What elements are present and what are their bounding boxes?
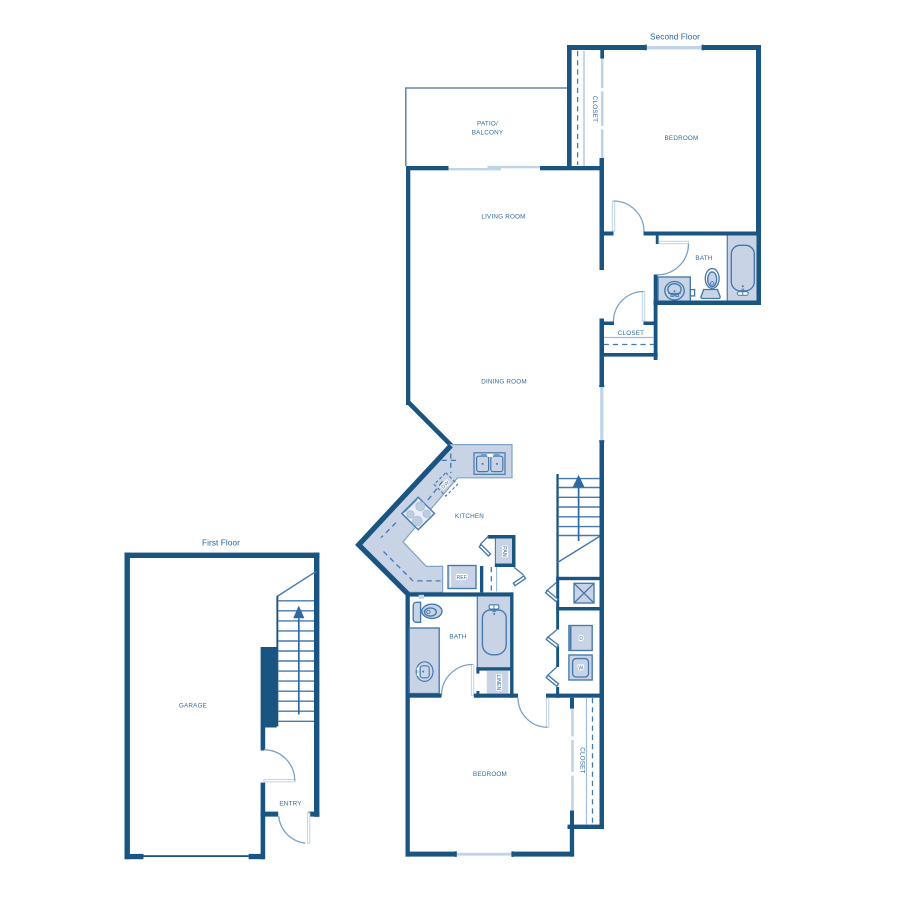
svg-text:DINING ROOM: DINING ROOM <box>481 378 527 385</box>
svg-text:PAN: PAN <box>501 546 507 557</box>
svg-text:D: D <box>579 636 583 642</box>
svg-text:BALCONY: BALCONY <box>472 129 504 136</box>
svg-text:BATH: BATH <box>695 255 712 262</box>
svg-text:PATIO/: PATIO/ <box>477 120 498 127</box>
svg-text:GARAGE: GARAGE <box>179 702 207 709</box>
svg-text:CLOSET: CLOSET <box>618 330 644 337</box>
svg-text:W: W <box>578 666 583 672</box>
svg-text:KITCHEN: KITCHEN <box>455 513 484 520</box>
svg-text:BEDROOM: BEDROOM <box>473 771 507 778</box>
svg-text:REF: REF <box>456 575 467 581</box>
svg-text:CLOSET: CLOSET <box>591 96 598 122</box>
svg-text:LINEN: LINEN <box>495 675 501 691</box>
svg-text:Second Floor: Second Floor <box>650 33 700 42</box>
svg-text:BEDROOM: BEDROOM <box>665 135 699 142</box>
svg-text:LIVING ROOM: LIVING ROOM <box>481 214 525 221</box>
svg-text:BATH: BATH <box>449 633 466 640</box>
svg-text:First Floor: First Floor <box>202 539 240 548</box>
svg-text:CLOSET: CLOSET <box>578 747 585 773</box>
svg-text:ENTRY: ENTRY <box>279 801 302 808</box>
